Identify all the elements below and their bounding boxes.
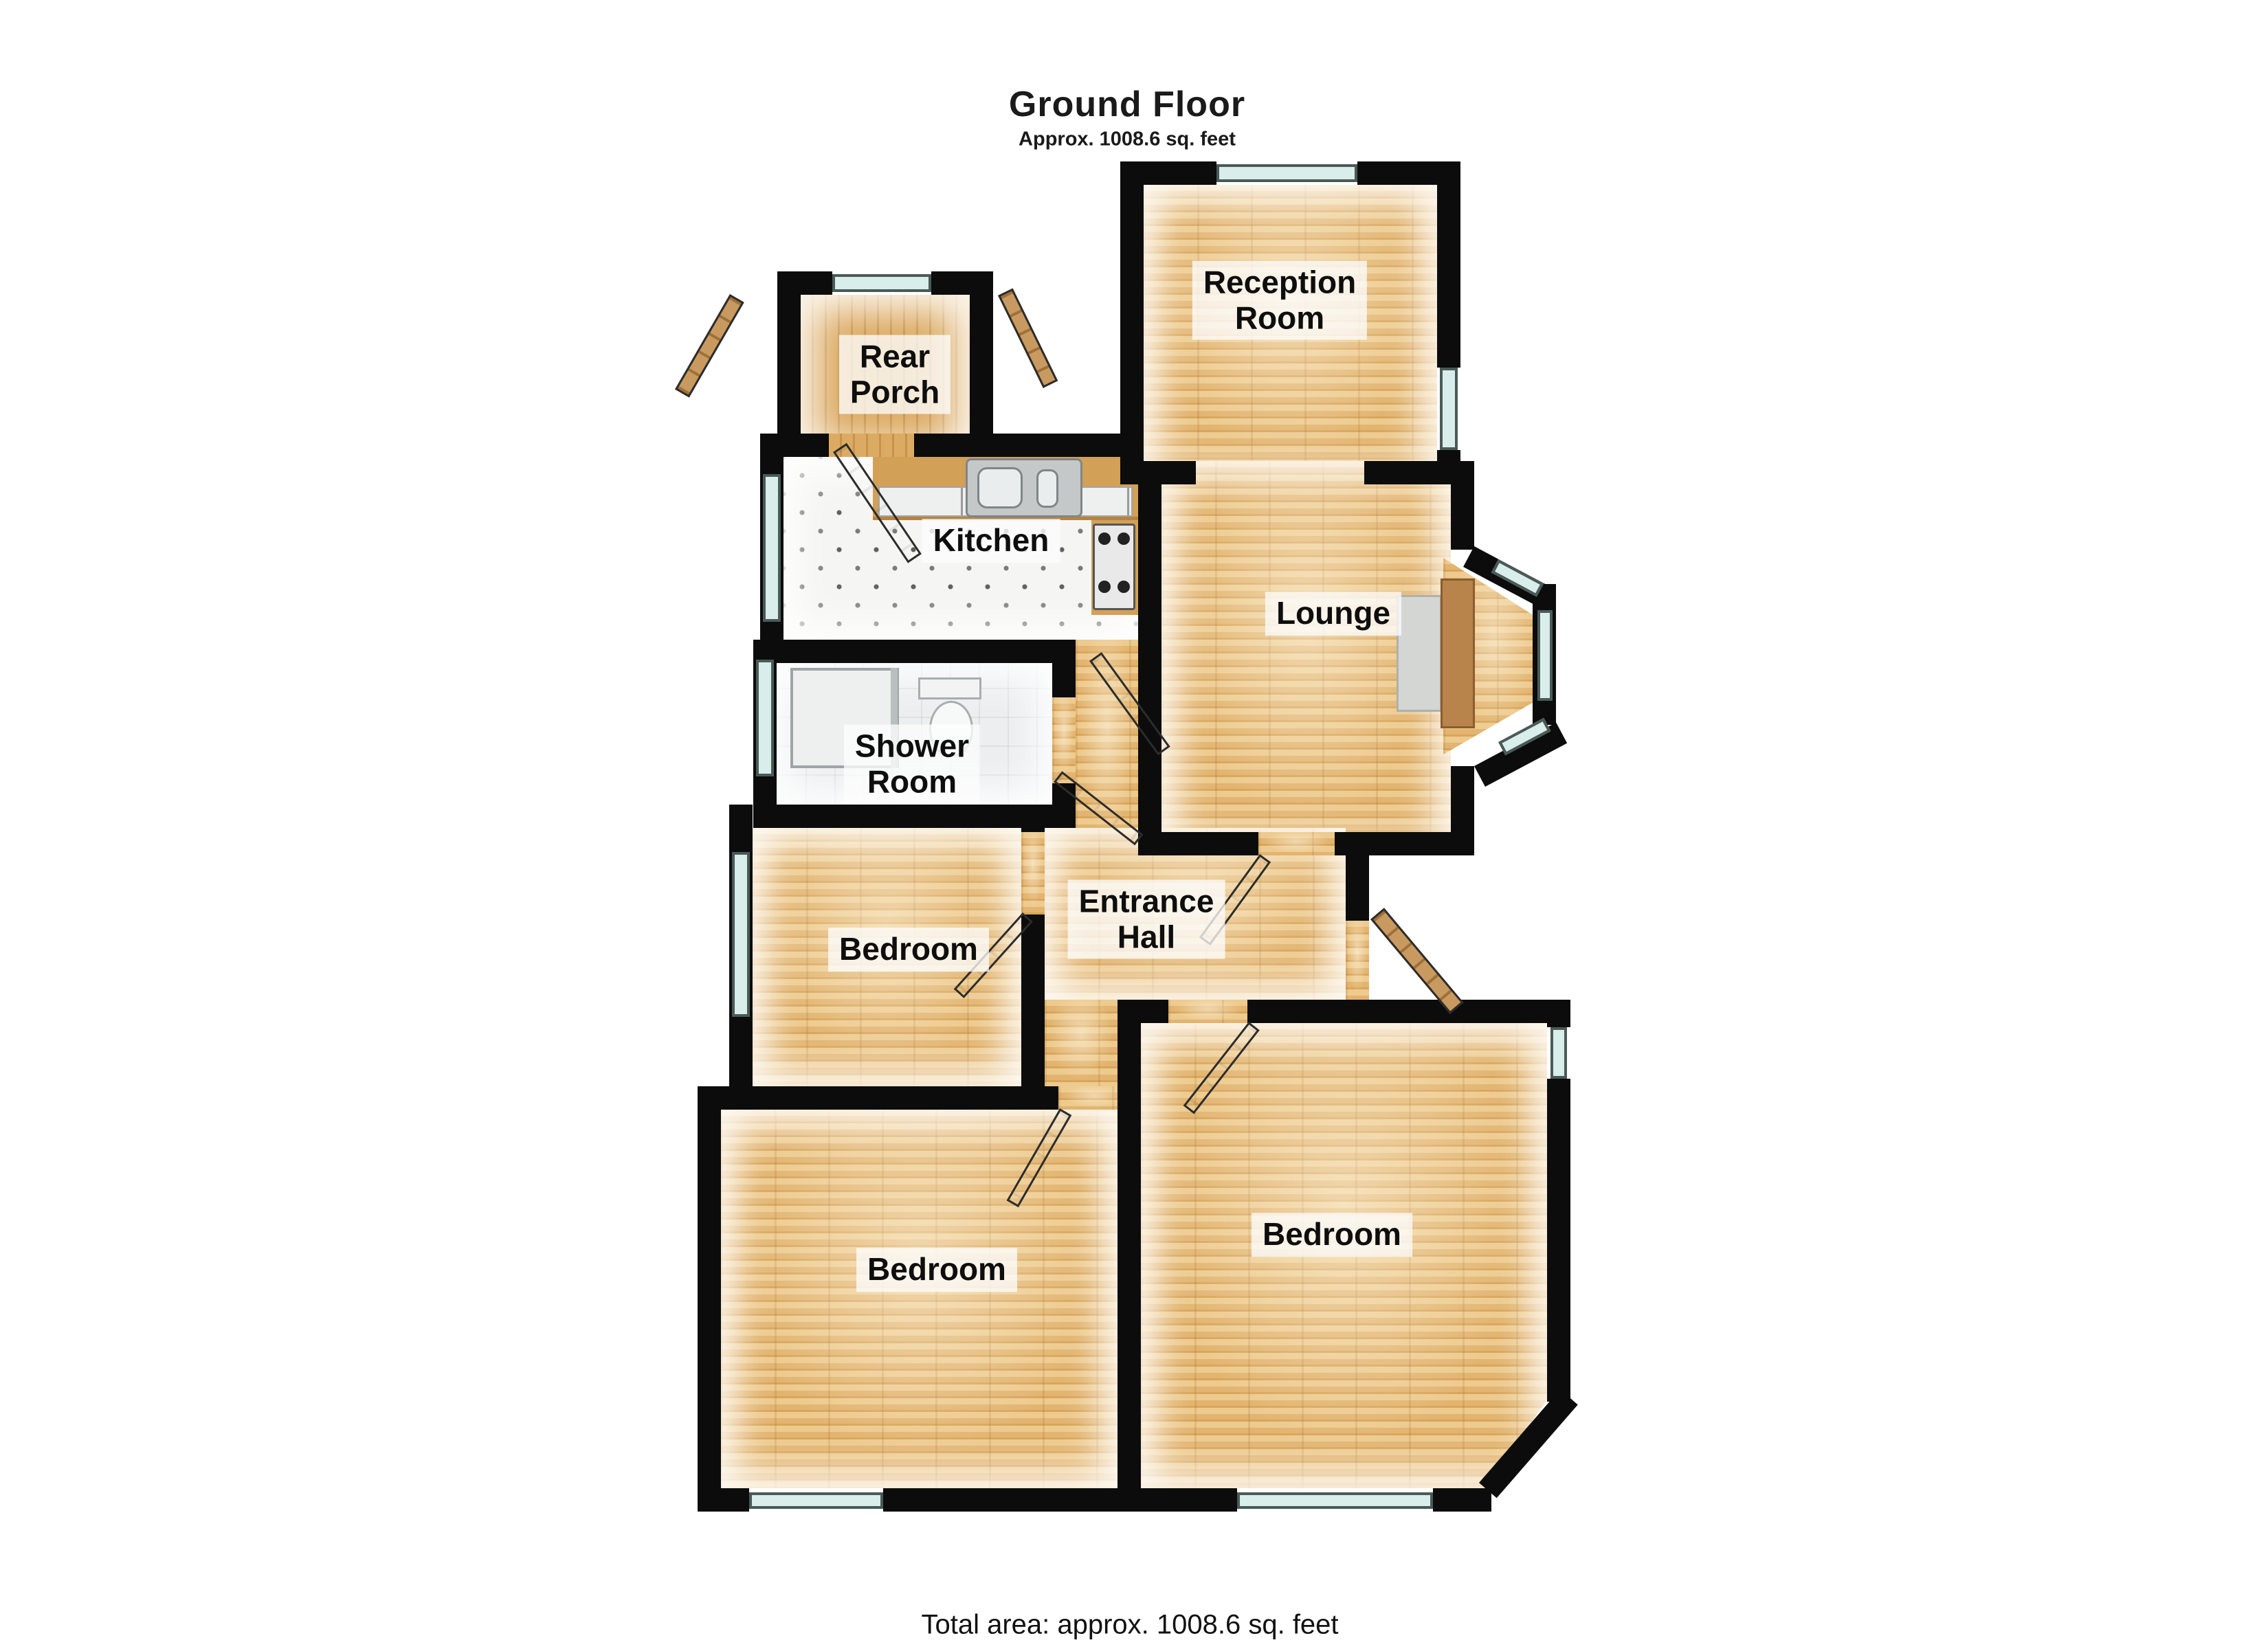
stove-burner: [1118, 581, 1130, 593]
bedroom-bottom-left-window: [749, 1492, 883, 1509]
wall: [1138, 461, 1161, 855]
porch-top-window: [832, 274, 931, 292]
wall: [1052, 663, 1076, 697]
entrance-hall-lower-floor: [1045, 1000, 1118, 1086]
wall: [777, 271, 801, 457]
wall: [1118, 1000, 1141, 1512]
wall: [1131, 1086, 1141, 1110]
wall: [1247, 1000, 1570, 1023]
doorway-patch: [1346, 921, 1369, 1000]
sink-bowl-large: [977, 467, 1023, 508]
toilet-tank: [918, 677, 981, 699]
wall: [698, 1488, 749, 1512]
wall: [1451, 461, 1474, 550]
doorway-patch: [1052, 697, 1076, 783]
lounge-bay-window-right: [1537, 610, 1553, 701]
stove-burner: [1098, 581, 1111, 593]
wall: [1021, 915, 1045, 1110]
bedroom-bottom-left-floor: [721, 1110, 1118, 1488]
wall: [1547, 1000, 1570, 1027]
wall: [698, 1086, 1058, 1110]
fireplace-mantel: [1441, 579, 1475, 728]
reception-top-window: [1216, 164, 1357, 182]
wall: [698, 1086, 721, 1512]
kitchen-left-window: [763, 474, 781, 622]
room-label-shower-room: Shower Room: [844, 724, 980, 803]
wall: [1547, 1079, 1570, 1402]
wall: [753, 640, 1076, 663]
room-label-lounge: Lounge: [1265, 592, 1401, 636]
fireplace-hearth: [1397, 595, 1442, 712]
bedroom-middle-window: [732, 852, 750, 1017]
doorway-patch: [1021, 832, 1045, 915]
bedroom-bottom-right-window: [1237, 1492, 1433, 1509]
doorway-patch: [1258, 832, 1335, 855]
wall: [970, 271, 993, 457]
wall: [1335, 832, 1474, 855]
room-label-bedroom-bottom-right: Bedroom: [1252, 1213, 1412, 1257]
sink-bowl-small: [1036, 469, 1058, 508]
room-label-rear-porch: Rear Porch: [839, 335, 950, 414]
doorway-patch: [1168, 1000, 1247, 1023]
wall: [1021, 805, 1045, 832]
wall: [1138, 832, 1258, 855]
wall: [914, 434, 1138, 457]
front-door: [1370, 908, 1464, 1014]
room-label-reception: Reception Room: [1192, 260, 1367, 339]
wall: [1437, 161, 1460, 368]
room-label-bedroom-bottom-left: Bedroom: [856, 1248, 1017, 1292]
wall: [777, 271, 832, 295]
shower-room-window: [756, 660, 774, 776]
room-label-kitchen: Kitchen: [922, 519, 1060, 563]
bedroom-right-side-window: [1550, 1027, 1567, 1079]
stove-burner: [1098, 532, 1111, 545]
room-label-entrance-hall: Entrance Hall: [1068, 879, 1225, 958]
floor-plan-page: Ground Floor Approx. 1008.6 sq. feet Tot…: [0, 0, 2268, 1649]
reception-right-window: [1440, 368, 1458, 450]
rear-porch-back-door: [675, 294, 744, 398]
wall: [1346, 855, 1369, 921]
stove-burner: [1118, 532, 1130, 545]
wall: [883, 1488, 1237, 1512]
wall: [1433, 1488, 1491, 1512]
floor-plan: Reception Room Rear Porch Kitchen Lounge…: [0, 0, 2268, 1649]
rear-porch-side-door: [998, 288, 1058, 388]
room-label-bedroom-middle: Bedroom: [828, 928, 989, 972]
